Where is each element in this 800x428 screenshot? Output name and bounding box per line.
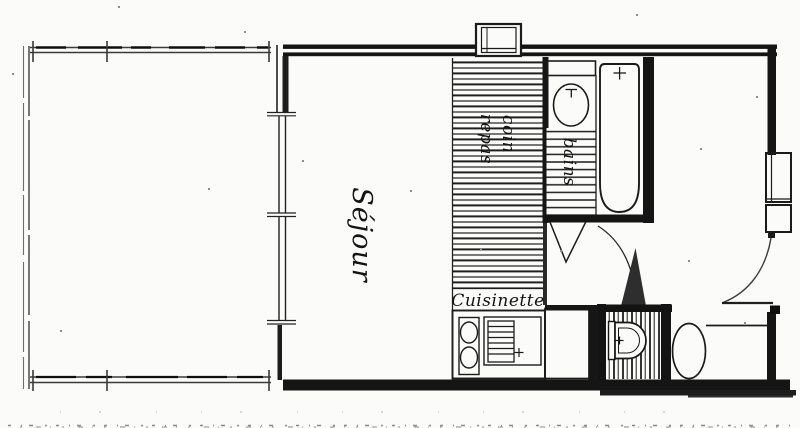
bains-bottom-wall: [545, 215, 654, 223]
scan-noise-bottom-band: [8, 412, 795, 427]
bathtub: [600, 64, 639, 212]
bains-door-swing: [549, 220, 587, 263]
wc-right-wall: [661, 304, 671, 380]
bains-right-wall: [643, 57, 654, 223]
dining-floor-hatch: [453, 58, 544, 288]
hall-oval-fixture: [673, 324, 706, 379]
chimney-duct: [476, 24, 521, 56]
kitchen-sink-grill: [484, 317, 541, 365]
wall-pier-upper: [283, 56, 289, 112]
bottom-wall: [283, 380, 790, 391]
sejour-window-lower: [279, 217, 286, 321]
wall-pier-lower: [278, 325, 283, 380]
kitchen-wc-wall: [589, 305, 598, 380]
right-wall-lower: [767, 312, 776, 385]
cuisinette-label: Cuisinette: [451, 291, 544, 311]
right-window: [766, 153, 791, 232]
coin-repas-label-line1: coin: [498, 115, 518, 153]
entry-door-arc: [723, 238, 771, 303]
sejour-window-upper: [279, 116, 286, 213]
coin-repas-label-line2: repas: [476, 114, 496, 164]
door-stop-block: [770, 306, 780, 315]
top-wall-inner: [283, 52, 777, 56]
balcony-loggia: [24, 41, 272, 391]
hall-area: [673, 324, 769, 379]
bathroom-shelf: [548, 61, 596, 76]
floor-plan-drawing: Séjour coin repas bains Cuisinette: [0, 0, 800, 428]
door-hinge-stub: [768, 232, 775, 238]
sejour-label: Séjour: [346, 187, 377, 283]
top-wall-outer: [283, 45, 777, 49]
toilet: [609, 322, 647, 360]
wc-door: [598, 226, 646, 306]
wc-left-wall: [597, 304, 606, 380]
sejour-window-wall: [267, 45, 296, 380]
kitchen-counter-right: [545, 309, 589, 379]
floor-plan-scan: Séjour coin repas bains Cuisinette: [0, 0, 800, 428]
wc-area: [597, 304, 672, 380]
balcony-bottom-railing: [30, 370, 271, 391]
bottom-wall-smear: [600, 390, 796, 396]
bains-label: bains: [559, 138, 579, 187]
washbasin: [554, 84, 589, 126]
balcony-top-railing: [30, 41, 271, 62]
wc-top-wall: [597, 305, 672, 313]
right-wall-upper: [768, 45, 777, 155]
cooktop-burners: [459, 318, 479, 375]
entry-door: [722, 232, 780, 314]
